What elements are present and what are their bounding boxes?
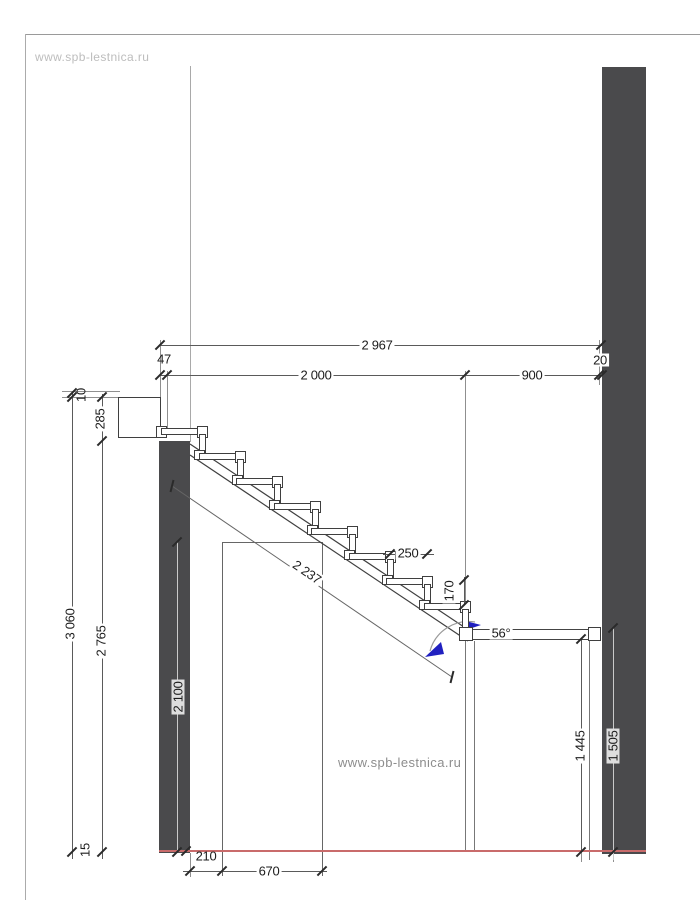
dim-total-height-label: 3 060: [64, 606, 77, 641]
dim-bottom-offset-label: 210: [194, 850, 219, 863]
lower-floor-right-block: [588, 627, 601, 641]
diagonal-graphics: [0, 0, 700, 900]
dim-wall-gap-label: 20: [591, 354, 609, 367]
dim-left-offset-label: 47: [155, 353, 173, 366]
dim-lower-floor-label: 1 505: [607, 728, 620, 763]
dim-tread-depth-label: 250: [396, 547, 421, 560]
dim-top-offset-label: 10: [75, 386, 88, 404]
dim-lower-clear-label: 1 445: [574, 728, 587, 763]
dim-floor-finish-label: 15: [79, 841, 92, 859]
angle-arrow-left-icon: [425, 642, 444, 657]
stringer-dim-tick-end: [451, 671, 454, 683]
dim-total-width-label: 2 967: [359, 339, 394, 352]
lower-floor-left-block: [459, 627, 473, 641]
dim-passage-width-label: 670: [257, 865, 282, 878]
stair-section-drawing: www.spb-lestnica.ru www.spb-lestnica.ru: [0, 0, 700, 900]
red-baseline: [159, 850, 646, 852]
dim-riser-height-label: 170: [443, 579, 456, 604]
dim-landing-width-label: 900: [520, 369, 545, 382]
dim-slab-thickness-label: 285: [94, 407, 107, 432]
dim-stair-angle-label: 56°: [490, 627, 513, 640]
dim-clear-height-label: 2 100: [172, 679, 185, 714]
landing-slab: [118, 397, 161, 438]
stringer-dim-tick-start: [171, 480, 174, 492]
step-riser: [462, 609, 469, 629]
dim-under-slab-label: 2 765: [95, 623, 108, 658]
dim-stair-run-label: 2 000: [298, 369, 333, 382]
